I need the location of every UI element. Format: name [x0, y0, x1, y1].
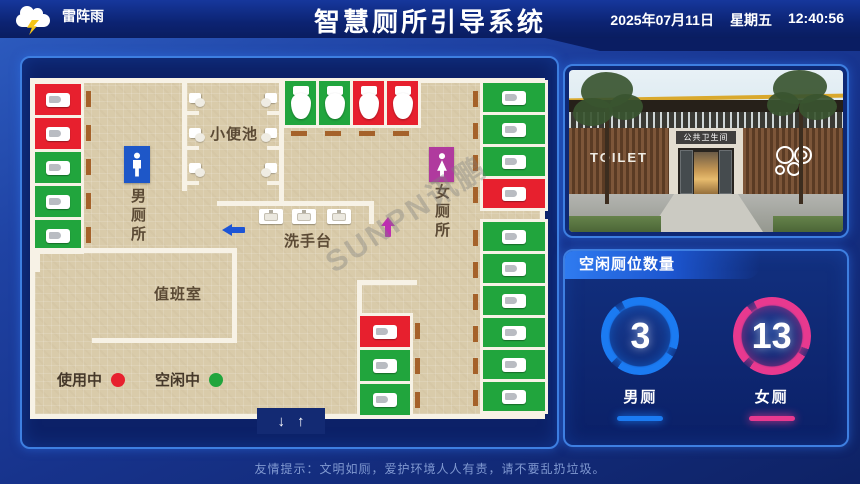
photo-tree-trunk [605, 108, 609, 204]
women-label: 女厕 [755, 386, 789, 407]
toilet-icon [502, 91, 526, 105]
arrow-left-icon [222, 224, 246, 236]
toilet-icon [359, 86, 379, 120]
photo-grass [569, 216, 661, 232]
men-underline [617, 416, 663, 421]
stall-free [35, 186, 81, 217]
urinal-partition [187, 111, 199, 115]
toilet-icon [46, 127, 70, 141]
stall-occupied [35, 84, 81, 115]
women-sign [429, 147, 454, 182]
toilet-icon [46, 93, 70, 107]
stall-door-mark [473, 91, 478, 107]
urinal-icon [189, 163, 205, 177]
men-room-label: 男厕所 [127, 188, 148, 245]
stall-free [483, 222, 545, 251]
urinal-partition [187, 146, 199, 150]
date-text: 2025年07月11日 [610, 10, 714, 30]
stall-door-mark [86, 193, 91, 209]
wall [369, 206, 374, 224]
header-bar: 雷阵雨 智慧厕所引导系统 2025年07月11日 星期五 12:40:56 [0, 0, 860, 38]
duty-room-wall [35, 248, 237, 253]
stall-occupied [387, 81, 418, 125]
urinal-partition [267, 181, 279, 185]
stall-door-mark [473, 390, 478, 406]
women-room-label: 女厕所 [431, 184, 452, 241]
toilet-icon [373, 393, 397, 407]
stall-free [483, 286, 545, 315]
photo-panel: TOILET 公共卫生间 [563, 64, 849, 238]
footer-notice: 友情提示：文明如厕，爱护环境人人有责，请不要乱扔垃圾。 [0, 460, 860, 477]
stall-door-mark [473, 155, 478, 171]
stall-group-right-lower [480, 219, 548, 414]
stall-door-mark [393, 131, 409, 136]
legend-free: 空闲中 [155, 369, 223, 390]
urinal-icon [261, 93, 277, 107]
stall-door-mark [473, 294, 478, 310]
toilet-icon [502, 187, 526, 201]
man-icon [129, 151, 145, 178]
stat-women: 13 女厕 [716, 297, 828, 421]
red-dot-icon [111, 373, 125, 387]
photo-door-right [719, 150, 732, 194]
stall-free [360, 384, 410, 415]
toilet-icon [373, 325, 397, 339]
entrance-marker: ↓ ↑ [257, 408, 325, 434]
photo-building-sign: 公共卫生间 [676, 131, 736, 144]
toilet-icon [373, 359, 397, 373]
stall-group-left [32, 81, 84, 254]
toilet-icon [502, 123, 526, 137]
stall-door-mark [473, 262, 478, 278]
stall-door-mark [415, 323, 420, 339]
stall-free [483, 318, 545, 347]
stall-free [483, 350, 545, 379]
stall-free [360, 350, 410, 381]
photo-doorway [678, 148, 734, 194]
women-free-count: 13 [733, 297, 811, 375]
stall-door-mark [415, 358, 420, 374]
arrow-up-icon: ↑ [297, 413, 305, 430]
rings-logo-icon [767, 143, 819, 179]
men-sign [124, 146, 150, 183]
toilet-icon [502, 390, 526, 404]
arrow-down-icon: ↓ [278, 413, 286, 430]
stall-occupied [353, 81, 384, 125]
stats-row: 3 男厕 13 女厕 [565, 297, 847, 421]
toilet-icon [46, 229, 70, 243]
photo-tree-trunk [799, 104, 803, 204]
stall-door-mark [473, 230, 478, 246]
stall-free [483, 382, 545, 411]
sink-label: 洗手台 [276, 230, 340, 251]
stall-free [483, 83, 545, 112]
toilet-icon [502, 262, 526, 276]
stall-free [35, 152, 81, 183]
stall-door-mark [473, 326, 478, 342]
sink-icon [327, 209, 351, 224]
legend-free-label: 空闲中 [155, 369, 200, 390]
sink-icon [259, 209, 283, 224]
duty-room-wall [35, 248, 40, 272]
stall-free [483, 254, 545, 283]
toilet-icon [291, 86, 311, 120]
urinal-partition [267, 146, 279, 150]
stall-door-mark [415, 392, 420, 408]
toilet-icon [46, 195, 70, 209]
toilet-building-photo: TOILET 公共卫生间 [569, 70, 843, 232]
wall [182, 83, 187, 191]
urinal-partition [267, 111, 279, 115]
free-stalls-title: 空闲厕位数量 [565, 251, 760, 279]
women-count-ring: 13 [733, 297, 811, 375]
toilet-icon [393, 86, 413, 120]
time-text: 12:40:56 [788, 10, 844, 30]
stall-free [319, 81, 350, 125]
stall-free [285, 81, 316, 125]
men-label: 男厕 [623, 386, 657, 407]
stall-free [483, 147, 545, 176]
urinal-icon [261, 163, 277, 177]
urinal-partition [187, 181, 199, 185]
photo-wall-right [743, 128, 843, 194]
stall-door-mark [86, 125, 91, 141]
stall-door-mark [473, 123, 478, 139]
photo-entrance-wall: 公共卫生间 [669, 128, 743, 194]
urinal-label: 小便池 [202, 123, 266, 144]
wall [357, 280, 417, 285]
toilet-icon [502, 326, 526, 340]
arrow-up-icon [381, 217, 395, 237]
stat-men: 3 男厕 [584, 297, 696, 421]
men-count-ring: 3 [601, 297, 679, 375]
duty-room-wall [232, 248, 237, 343]
stall-group-top [282, 78, 421, 128]
stall-occupied [483, 179, 545, 208]
free-stalls-panel: 空闲厕位数量 3 男厕 13 女厕 [563, 249, 849, 447]
stall-free [35, 220, 81, 251]
toilet-icon [502, 230, 526, 244]
green-dot-icon [209, 373, 223, 387]
legend-in-use-label: 使用中 [57, 369, 102, 390]
photo-grass [773, 216, 843, 232]
floorplan: 男厕所 女厕所 小便池 洗手台 值班室 使用中 空闲中 [30, 78, 545, 419]
photo-wall-left: TOILET [569, 128, 669, 194]
toilet-icon [46, 161, 70, 175]
photo-interior [694, 152, 718, 194]
stall-door-mark [86, 159, 91, 175]
wall [279, 83, 284, 201]
floorplan-panel: 男厕所 女厕所 小便池 洗手台 值班室 使用中 空闲中 [20, 56, 559, 449]
header-extension [545, 38, 860, 51]
weekday-text: 星期五 [730, 10, 772, 30]
stall-group-middle [357, 313, 413, 418]
wall [357, 280, 362, 316]
men-free-count: 3 [601, 297, 679, 375]
photo-door-left [680, 150, 693, 194]
toilet-icon [325, 86, 345, 120]
toilet-icon [502, 155, 526, 169]
duty-room-label: 值班室 [138, 283, 218, 304]
status-legend: 使用中 空闲中 [57, 369, 223, 390]
legend-in-use: 使用中 [57, 369, 125, 390]
toilet-icon [502, 358, 526, 372]
stall-door-mark [473, 358, 478, 374]
stall-door-mark [325, 131, 341, 136]
stall-door-mark [473, 187, 478, 203]
toilet-icon [502, 294, 526, 308]
stall-group-right-upper [480, 80, 548, 211]
duty-room-wall [92, 338, 237, 343]
stall-door-mark [291, 131, 307, 136]
wall [217, 201, 374, 206]
stall-occupied [360, 316, 410, 347]
stall-door-mark [359, 131, 375, 136]
photo-toilet-text: TOILET [569, 150, 669, 165]
datetime: 2025年07月11日 星期五 12:40:56 [610, 10, 844, 30]
woman-icon [434, 152, 450, 178]
stall-occupied [35, 118, 81, 149]
women-underline [749, 416, 795, 421]
urinal-icon [189, 93, 205, 107]
sink-icon [292, 209, 316, 224]
stall-free [483, 115, 545, 144]
kiosk-screen: 雷阵雨 智慧厕所引导系统 2025年07月11日 星期五 12:40:56 [0, 0, 860, 484]
stall-door-mark [86, 91, 91, 107]
stall-door-mark [86, 227, 91, 243]
